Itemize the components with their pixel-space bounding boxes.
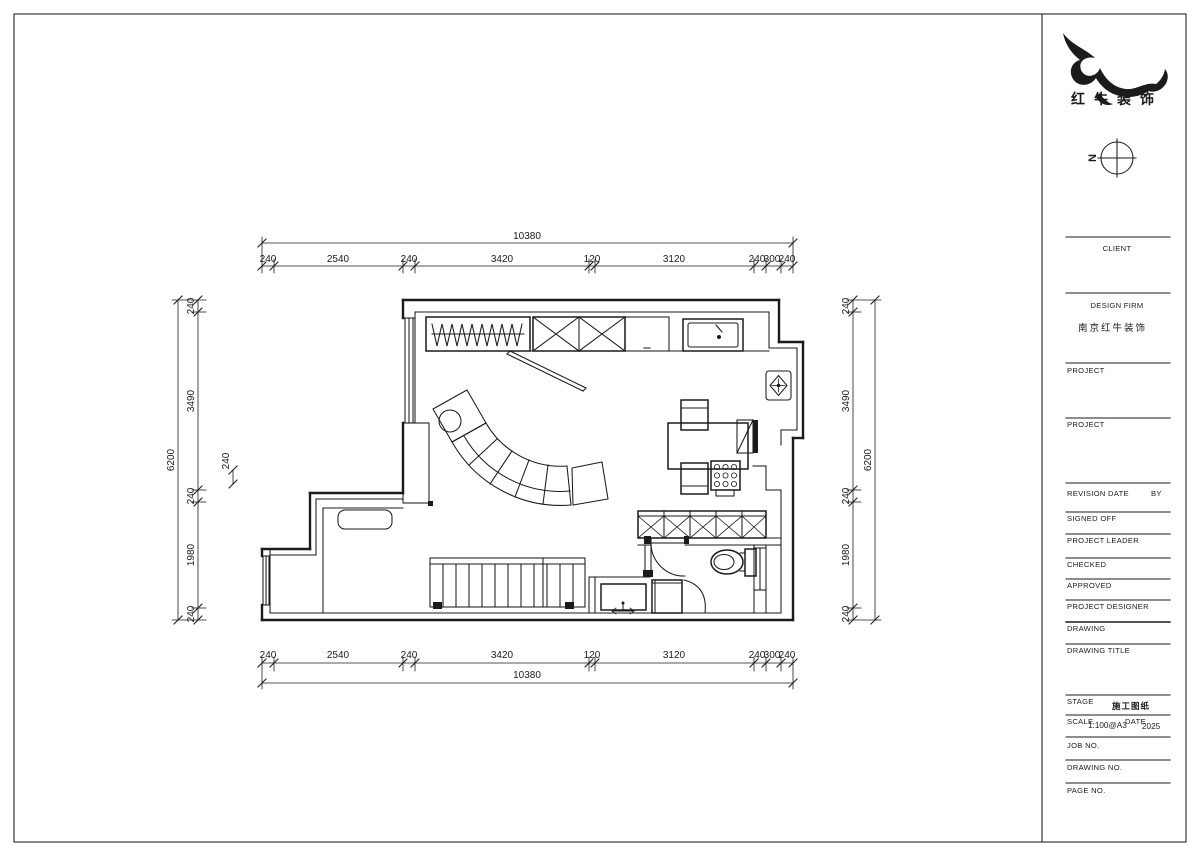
bench-cushion [338, 510, 392, 529]
dim-top-0: 240 [260, 254, 277, 265]
window-left-lower [262, 556, 270, 605]
dim-bottom-0: 240 [260, 650, 277, 661]
title-block: 红牛装饰 N CLIENT DE [1063, 33, 1170, 795]
dim-top-2: 240 [401, 254, 418, 265]
project-leader-label: PROJECT LEADER [1067, 536, 1139, 545]
brand-name: 红牛装饰 [1071, 91, 1163, 107]
dim-left-0: 240 [186, 297, 197, 314]
stage-value: 施工图纸 [1112, 701, 1150, 711]
dim-left-4: 240 [186, 605, 197, 622]
toilet [711, 549, 756, 576]
project-label-1: PROJECT [1067, 366, 1105, 375]
shower-base [652, 580, 705, 613]
drawing-no-label: DRAWING NO. [1067, 763, 1122, 772]
sheet-border [14, 14, 1186, 842]
page-no-label: PAGE NO. [1067, 786, 1106, 795]
dim-bottom-2: 240 [401, 650, 418, 661]
dim-floating-240: 240 [221, 452, 232, 469]
gas-meter [766, 371, 791, 400]
dim-bottom-total: 10380 [513, 670, 541, 681]
project-designer-label: PROJECT DESIGNER [1067, 602, 1149, 611]
dim-left-1: 3490 [186, 389, 197, 412]
dim-bottom-5: 3120 [663, 650, 686, 661]
dim-top-total: 10380 [513, 231, 541, 242]
wardrobe-hangers [426, 317, 530, 351]
dimension-left: 6200 240 3490 240 1980 240 240 [166, 296, 237, 624]
revision-label: REVISION [1067, 489, 1106, 498]
north-label: N [1087, 154, 1099, 162]
project-label-2: PROJECT [1067, 420, 1105, 429]
dimension-bottom: 240 2540 240 3420 120 3120 240 300 240 1… [258, 650, 797, 689]
diagonal-element [507, 351, 586, 391]
dimension-top: 10380 240 2540 240 3420 120 3120 240 300… [258, 231, 797, 273]
north-compass-icon: N [1087, 139, 1136, 177]
client-label: CLIENT [1103, 244, 1132, 253]
date-value: 2025 [1142, 722, 1161, 731]
dim-left-2: 240 [186, 487, 197, 504]
scale-value: 1:100@A3 [1088, 721, 1127, 730]
dim-right-0: 240 [841, 297, 852, 314]
drawing-sheet: 红牛装饰 N CLIENT DE [0, 0, 1200, 856]
kitchen-sink [683, 319, 743, 351]
dim-bottom-8: 240 [779, 650, 796, 661]
dim-top-4: 120 [584, 254, 601, 265]
dim-top-5: 3120 [663, 254, 686, 265]
dim-right-4: 240 [841, 605, 852, 622]
dim-left-total: 6200 [166, 448, 177, 471]
design-firm-name: 南京红牛装饰 [1078, 322, 1147, 334]
dim-right-2: 240 [841, 487, 852, 504]
dining-chair-bottom [681, 463, 708, 494]
date-label: DATE [1108, 489, 1129, 498]
design-firm-label: DESIGN FIRM [1090, 301, 1143, 310]
storage-cabinet-bathroom [638, 511, 766, 538]
window-left-upper [403, 318, 415, 423]
dim-bottom-1: 2540 [327, 650, 350, 661]
drawing-title-label: DRAWING TITLE [1067, 646, 1130, 655]
by-label: BY [1151, 489, 1162, 498]
stage-label: STAGE [1067, 697, 1094, 706]
tv-cabinet [589, 577, 650, 614]
dim-right-1: 3490 [841, 389, 852, 412]
curved-sofa [433, 390, 608, 505]
round-side-table [439, 410, 461, 432]
floor-plan-svg: 红牛装饰 N CLIENT DE [0, 0, 1200, 856]
dim-top-3: 3420 [491, 254, 514, 265]
drawing-label: DRAWING [1067, 624, 1106, 633]
signed-off-label: SIGNED OFF [1067, 514, 1116, 523]
stair-window-band [430, 558, 585, 609]
dim-bottom-3: 3420 [491, 650, 514, 661]
dim-bottom-4: 120 [584, 650, 601, 661]
checked-label: CHECKED [1067, 560, 1106, 569]
dim-right-total: 6200 [863, 448, 874, 471]
dim-right-3: 1980 [841, 543, 852, 566]
tufted-ottoman [711, 461, 740, 496]
dining-chair-top [681, 400, 708, 430]
bathroom [638, 536, 781, 613]
dim-top-1: 2540 [327, 254, 350, 265]
dim-top-8: 240 [779, 254, 796, 265]
approved-label: APPROVED [1067, 581, 1112, 590]
dimension-right: 240 3490 240 1980 240 6200 [841, 296, 881, 624]
dim-left-3: 1980 [186, 543, 197, 566]
job-no-label: JOB NO. [1067, 741, 1099, 750]
